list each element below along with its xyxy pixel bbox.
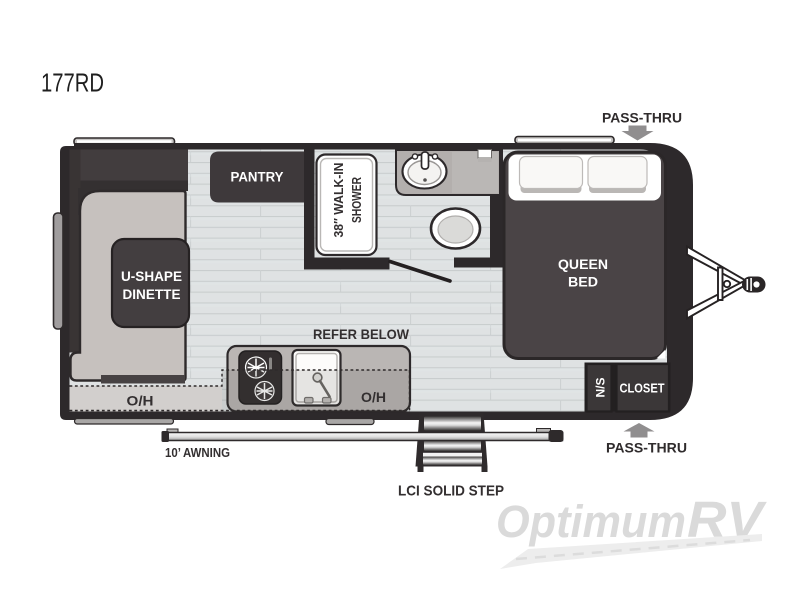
svg-text:LCI SOLID STEP: LCI SOLID STEP: [398, 483, 504, 500]
svg-text:BED: BED: [568, 275, 598, 290]
svg-text:PASS-THRU: PASS-THRU: [606, 440, 687, 456]
svg-text:O/H: O/H: [127, 393, 154, 409]
svg-text:O/H: O/H: [361, 389, 386, 405]
svg-text:PASS-THRU: PASS-THRU: [602, 110, 682, 126]
svg-text:REFER BELOW: REFER BELOW: [313, 326, 410, 342]
svg-text:QUEEN: QUEEN: [558, 257, 608, 272]
svg-text:177RD: 177RD: [41, 68, 104, 98]
svg-text:SHOWER: SHOWER: [349, 177, 364, 223]
svg-text:PANTRY: PANTRY: [231, 170, 284, 185]
svg-text:U-SHAPE: U-SHAPE: [121, 269, 182, 284]
svg-text:CLOSET: CLOSET: [620, 382, 665, 396]
svg-text:N/S: N/S: [594, 378, 608, 398]
svg-text:Optimum: Optimum: [496, 496, 686, 547]
svg-text:10’ AWNING: 10’ AWNING: [165, 446, 230, 460]
svg-text:38″ WALK-IN: 38″ WALK-IN: [331, 163, 346, 238]
svg-text:DINETTE: DINETTE: [123, 287, 181, 302]
